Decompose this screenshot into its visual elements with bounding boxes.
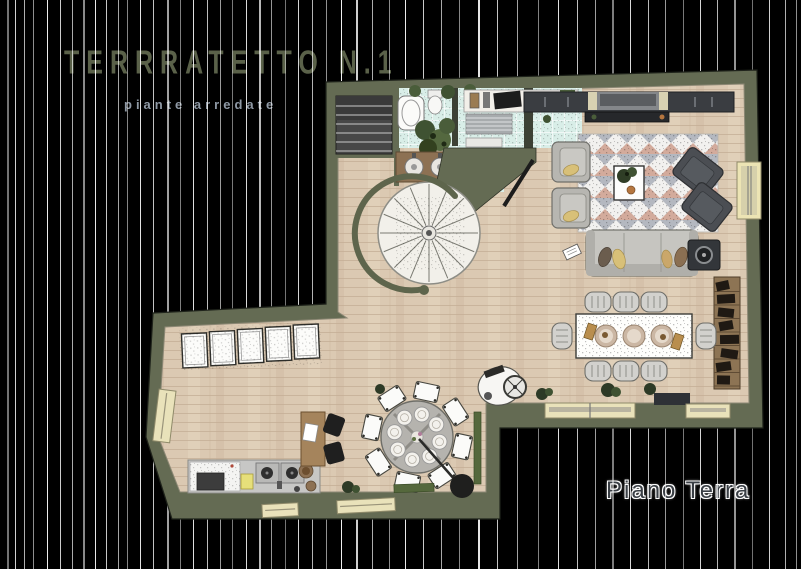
dining-chair (641, 361, 667, 381)
speaker-table (688, 240, 720, 270)
kitchen-counter (188, 460, 320, 493)
window-right-wall (737, 162, 761, 219)
screenshot-canvas: TERRRATETTO N.1 piante arredate Piano Te… (0, 0, 801, 569)
dining-chair (585, 361, 611, 381)
entry-staircase (328, 86, 400, 158)
dining-chair (613, 292, 639, 312)
dining-chair (585, 292, 611, 312)
floor-plan (0, 0, 801, 569)
coffee-table (614, 166, 644, 200)
dining-chair (613, 361, 639, 381)
dining-chair (552, 323, 572, 349)
dining-chair (641, 292, 667, 312)
pendant-lamp (450, 474, 474, 498)
bookshelf (714, 277, 740, 389)
armchair-1 (552, 142, 590, 182)
toilet (428, 90, 442, 114)
dining-chair (696, 323, 716, 349)
tv (585, 112, 669, 122)
wall-console (654, 393, 690, 405)
sofa (586, 230, 698, 276)
armchair-2 (552, 188, 590, 228)
sideboard-cabinets (179, 322, 323, 370)
